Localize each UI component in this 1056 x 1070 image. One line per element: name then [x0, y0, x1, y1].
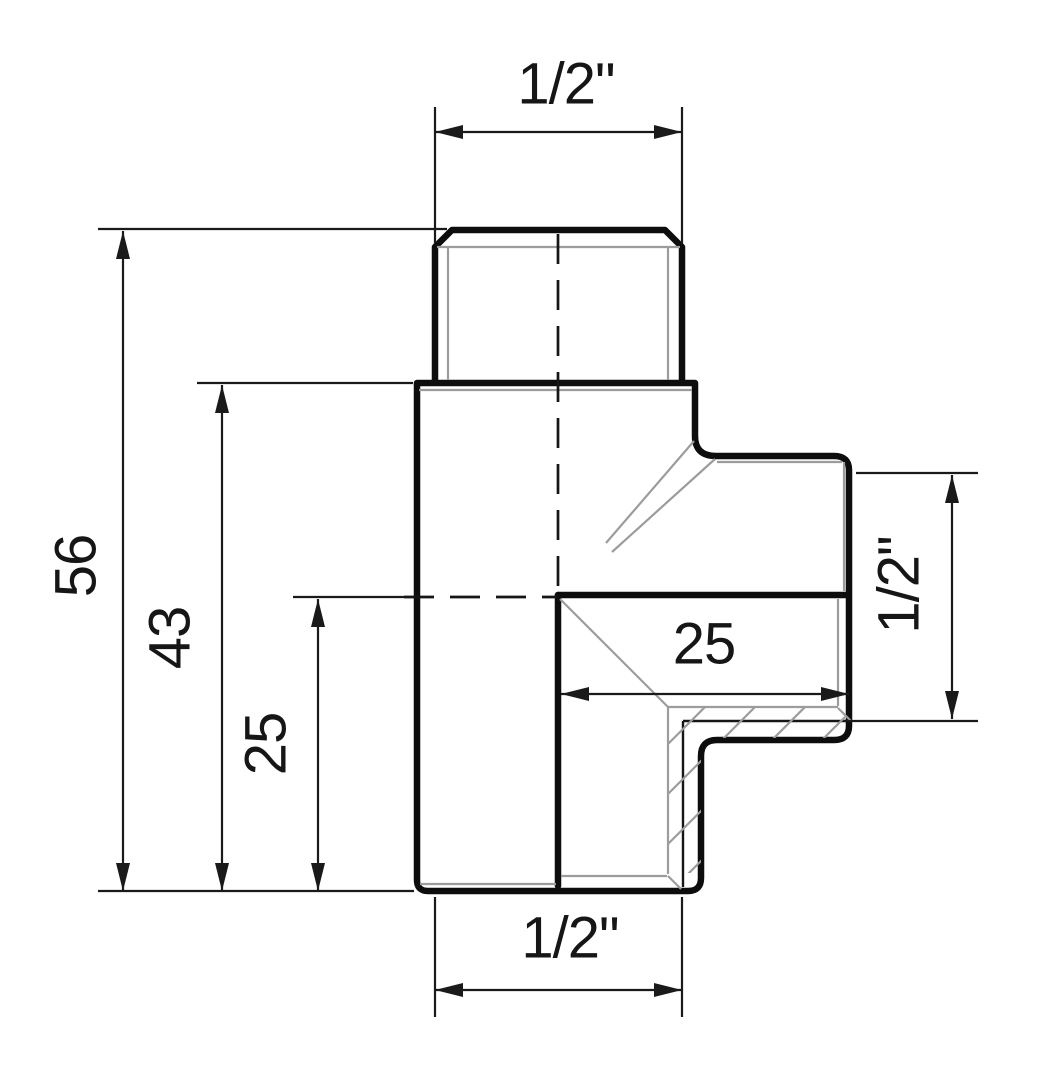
arrowhead-left [435, 125, 463, 139]
dim-label-top-thread: 1/2" [517, 52, 614, 117]
arrowhead-right [654, 983, 682, 997]
dim-label-branch-depth: 25 [673, 612, 736, 677]
arrowhead-down [311, 863, 325, 891]
arrowhead-down [116, 863, 130, 891]
dimension-body-height: 43 [138, 383, 414, 891]
thread-detail-lines [419, 247, 851, 889]
tee-fitting-drawing: 1/2" 56 43 25 25 1/2" [0, 0, 1056, 1070]
dim-label-overall-height: 56 [44, 535, 109, 598]
branch-cone-runout-lower [612, 459, 715, 552]
arrowhead-left [435, 983, 463, 997]
arrowhead-down [945, 691, 959, 719]
bottom-bore-exit-chamfer [668, 876, 681, 889]
dim-label-center-to-bottom: 25 [234, 713, 299, 776]
fitting-outline [417, 230, 849, 891]
dimension-overall-height: 56 [44, 229, 448, 891]
arrowhead-right [821, 687, 849, 701]
drawing-canvas: 1/2" 56 43 25 25 1/2" [0, 0, 1056, 1070]
arrowhead-down [215, 863, 229, 891]
body-outline [417, 383, 849, 891]
arrowhead-right [654, 125, 682, 139]
dimension-bottom-thread: 1/2" [435, 897, 682, 1017]
dimension-top-thread: 1/2" [435, 52, 682, 245]
branch-cone-runout-upper [606, 441, 694, 543]
centerlines [404, 234, 558, 597]
dimension-center-to-bottom: 25 [234, 597, 412, 891]
arrowhead-left [561, 687, 589, 701]
dim-label-branch-thread: 1/2" [867, 536, 932, 633]
arrowhead-up [215, 385, 229, 413]
dim-label-body-height: 43 [138, 607, 203, 670]
dimension-branch-thread: 1/2" [845, 473, 978, 721]
arrowhead-up [116, 231, 130, 259]
thread-major-lines [683, 721, 850, 887]
arrowhead-up [311, 599, 325, 627]
arrowhead-up [945, 475, 959, 503]
dim-label-bottom-thread: 1/2" [521, 906, 618, 971]
dimension-branch-depth: 25 [561, 612, 849, 702]
